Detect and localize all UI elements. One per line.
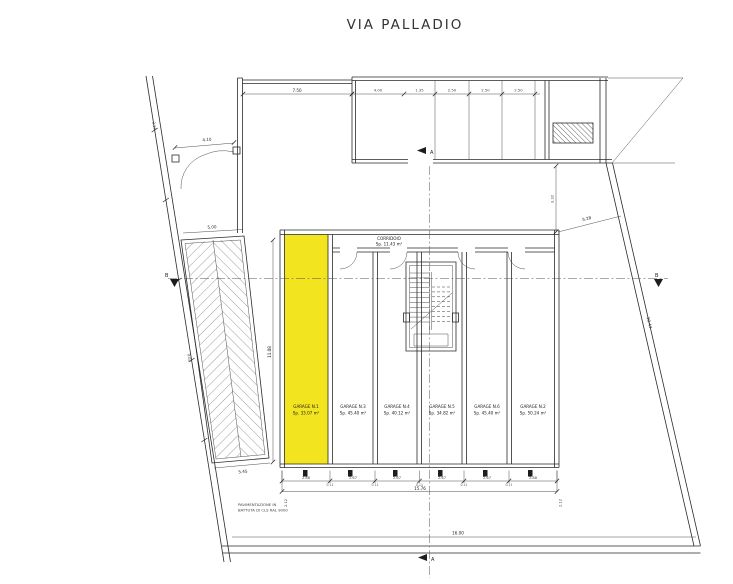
paving-note-line2: BATTUTA DI CLS RAL 9000	[238, 508, 288, 513]
garage-label-2-area: Sp. 45.40 m²	[340, 411, 367, 416]
stairwell	[404, 262, 459, 351]
garage-label-5-area: Sp. 45.40 m²	[474, 411, 501, 416]
dim-top-bay-3: 2.50	[481, 88, 490, 93]
generated-dimension-texts: 4.001.352.502.502.502.882.672.672.672.67…	[302, 88, 538, 488]
dim-block-side-right: 2.12	[559, 499, 563, 507]
dim-left-boundary-upper: 2.17	[151, 121, 157, 131]
garage-label-6-area: Sp. 50.24 m²	[520, 411, 547, 416]
dim-top-bay-4: 2.50	[514, 88, 523, 93]
section-arrow-a-top	[417, 147, 426, 154]
section-label-a-top: A	[430, 150, 434, 156]
section-label-b-left: B	[165, 273, 169, 279]
dim-top-bay-1: 1.35	[415, 88, 424, 93]
dim-wall-offset: 7.50	[292, 88, 302, 93]
section-arrow-b-right	[654, 279, 663, 287]
garage-label-5-name: GARAGE N.6	[474, 404, 500, 409]
entrance-gate	[172, 143, 240, 189]
dim-ramp-top: 5.00	[207, 224, 217, 229]
dim-top-bay-0: 4.00	[374, 88, 383, 93]
garage-n1-highlight[interactable]	[285, 235, 329, 465]
dim-wall-thickness-0: 0.11	[327, 483, 334, 487]
section-arrow-b-left	[170, 279, 179, 287]
section-arrow-a-bottom	[418, 554, 427, 561]
dim-stall-width-0: 2.88	[302, 476, 311, 480]
garage-block	[280, 230, 559, 477]
garage-label-1-name: GARAGE N.1	[293, 404, 319, 409]
garage-labels: GARAGE N.1Sp. 33.07 m²GARAGE N.3Sp. 45.4…	[293, 404, 547, 416]
dim-top-bay-2: 2.50	[448, 88, 457, 93]
dim-right-diagonal: 5.28	[582, 215, 592, 222]
dim-gate-width: 4.10	[202, 137, 212, 143]
dim-wall-thickness-3: 0.11	[461, 483, 468, 487]
dim-stall-width-5: 2.88	[529, 476, 538, 480]
dim-block-side-left: 2.12	[284, 499, 288, 507]
dim-wall-thickness-4: 0.11	[506, 483, 513, 487]
floor-plan-page: VIA PALLADIO	[0, 0, 733, 584]
stair-treads	[410, 273, 452, 322]
garage-label-4-area: Sp. 34.82 m²	[429, 411, 456, 416]
door-jambs	[303, 470, 533, 477]
dim-stall-width-3: 2.67	[438, 476, 446, 480]
garage-label-3-name: GARAGE N.4	[384, 404, 410, 409]
garage-label-3-area: Sp. 40.12 m²	[384, 411, 411, 416]
floor-plan-drawing: VIA PALLADIO	[0, 0, 733, 584]
dim-block-left-height: 11.08	[267, 346, 272, 358]
hatched-structure	[553, 123, 593, 143]
garage-label-2-name: GARAGE N.3	[340, 404, 366, 409]
dim-right-zone-height: 3.32	[550, 194, 555, 203]
garage-label-6-name: GARAGE N.2	[520, 404, 546, 409]
dim-wall-thickness-2: 0.11	[416, 483, 423, 487]
dim-stall-width-2: 2.67	[393, 476, 401, 480]
garage-label-1-area: Sp. 33.07 m²	[293, 411, 320, 416]
dim-stall-width-1: 2.67	[349, 476, 357, 480]
section-label-a-bottom: A	[431, 557, 435, 563]
section-label-b-right: B	[655, 273, 659, 279]
paving-note-line1: PAVIMENTAZIONE IN	[238, 502, 277, 507]
ramp	[181, 230, 270, 469]
corridor-name: CORRIDOIO	[377, 236, 401, 241]
dim-site-bottom: 16.00	[452, 531, 464, 536]
dim-ramp-bottom: 5.45	[238, 469, 248, 475]
page-title: VIA PALLADIO	[347, 17, 464, 33]
garage-label-4-name: GARAGE N.5	[429, 404, 455, 409]
dim-stall-width-4: 2.67	[483, 476, 491, 480]
corridor-area: Sp. 11.43 m²	[376, 242, 403, 247]
dim-wall-thickness-1: 0.11	[372, 483, 379, 487]
dim-right-boundary: 10.44	[646, 316, 654, 329]
corridor-doors	[340, 252, 525, 269]
